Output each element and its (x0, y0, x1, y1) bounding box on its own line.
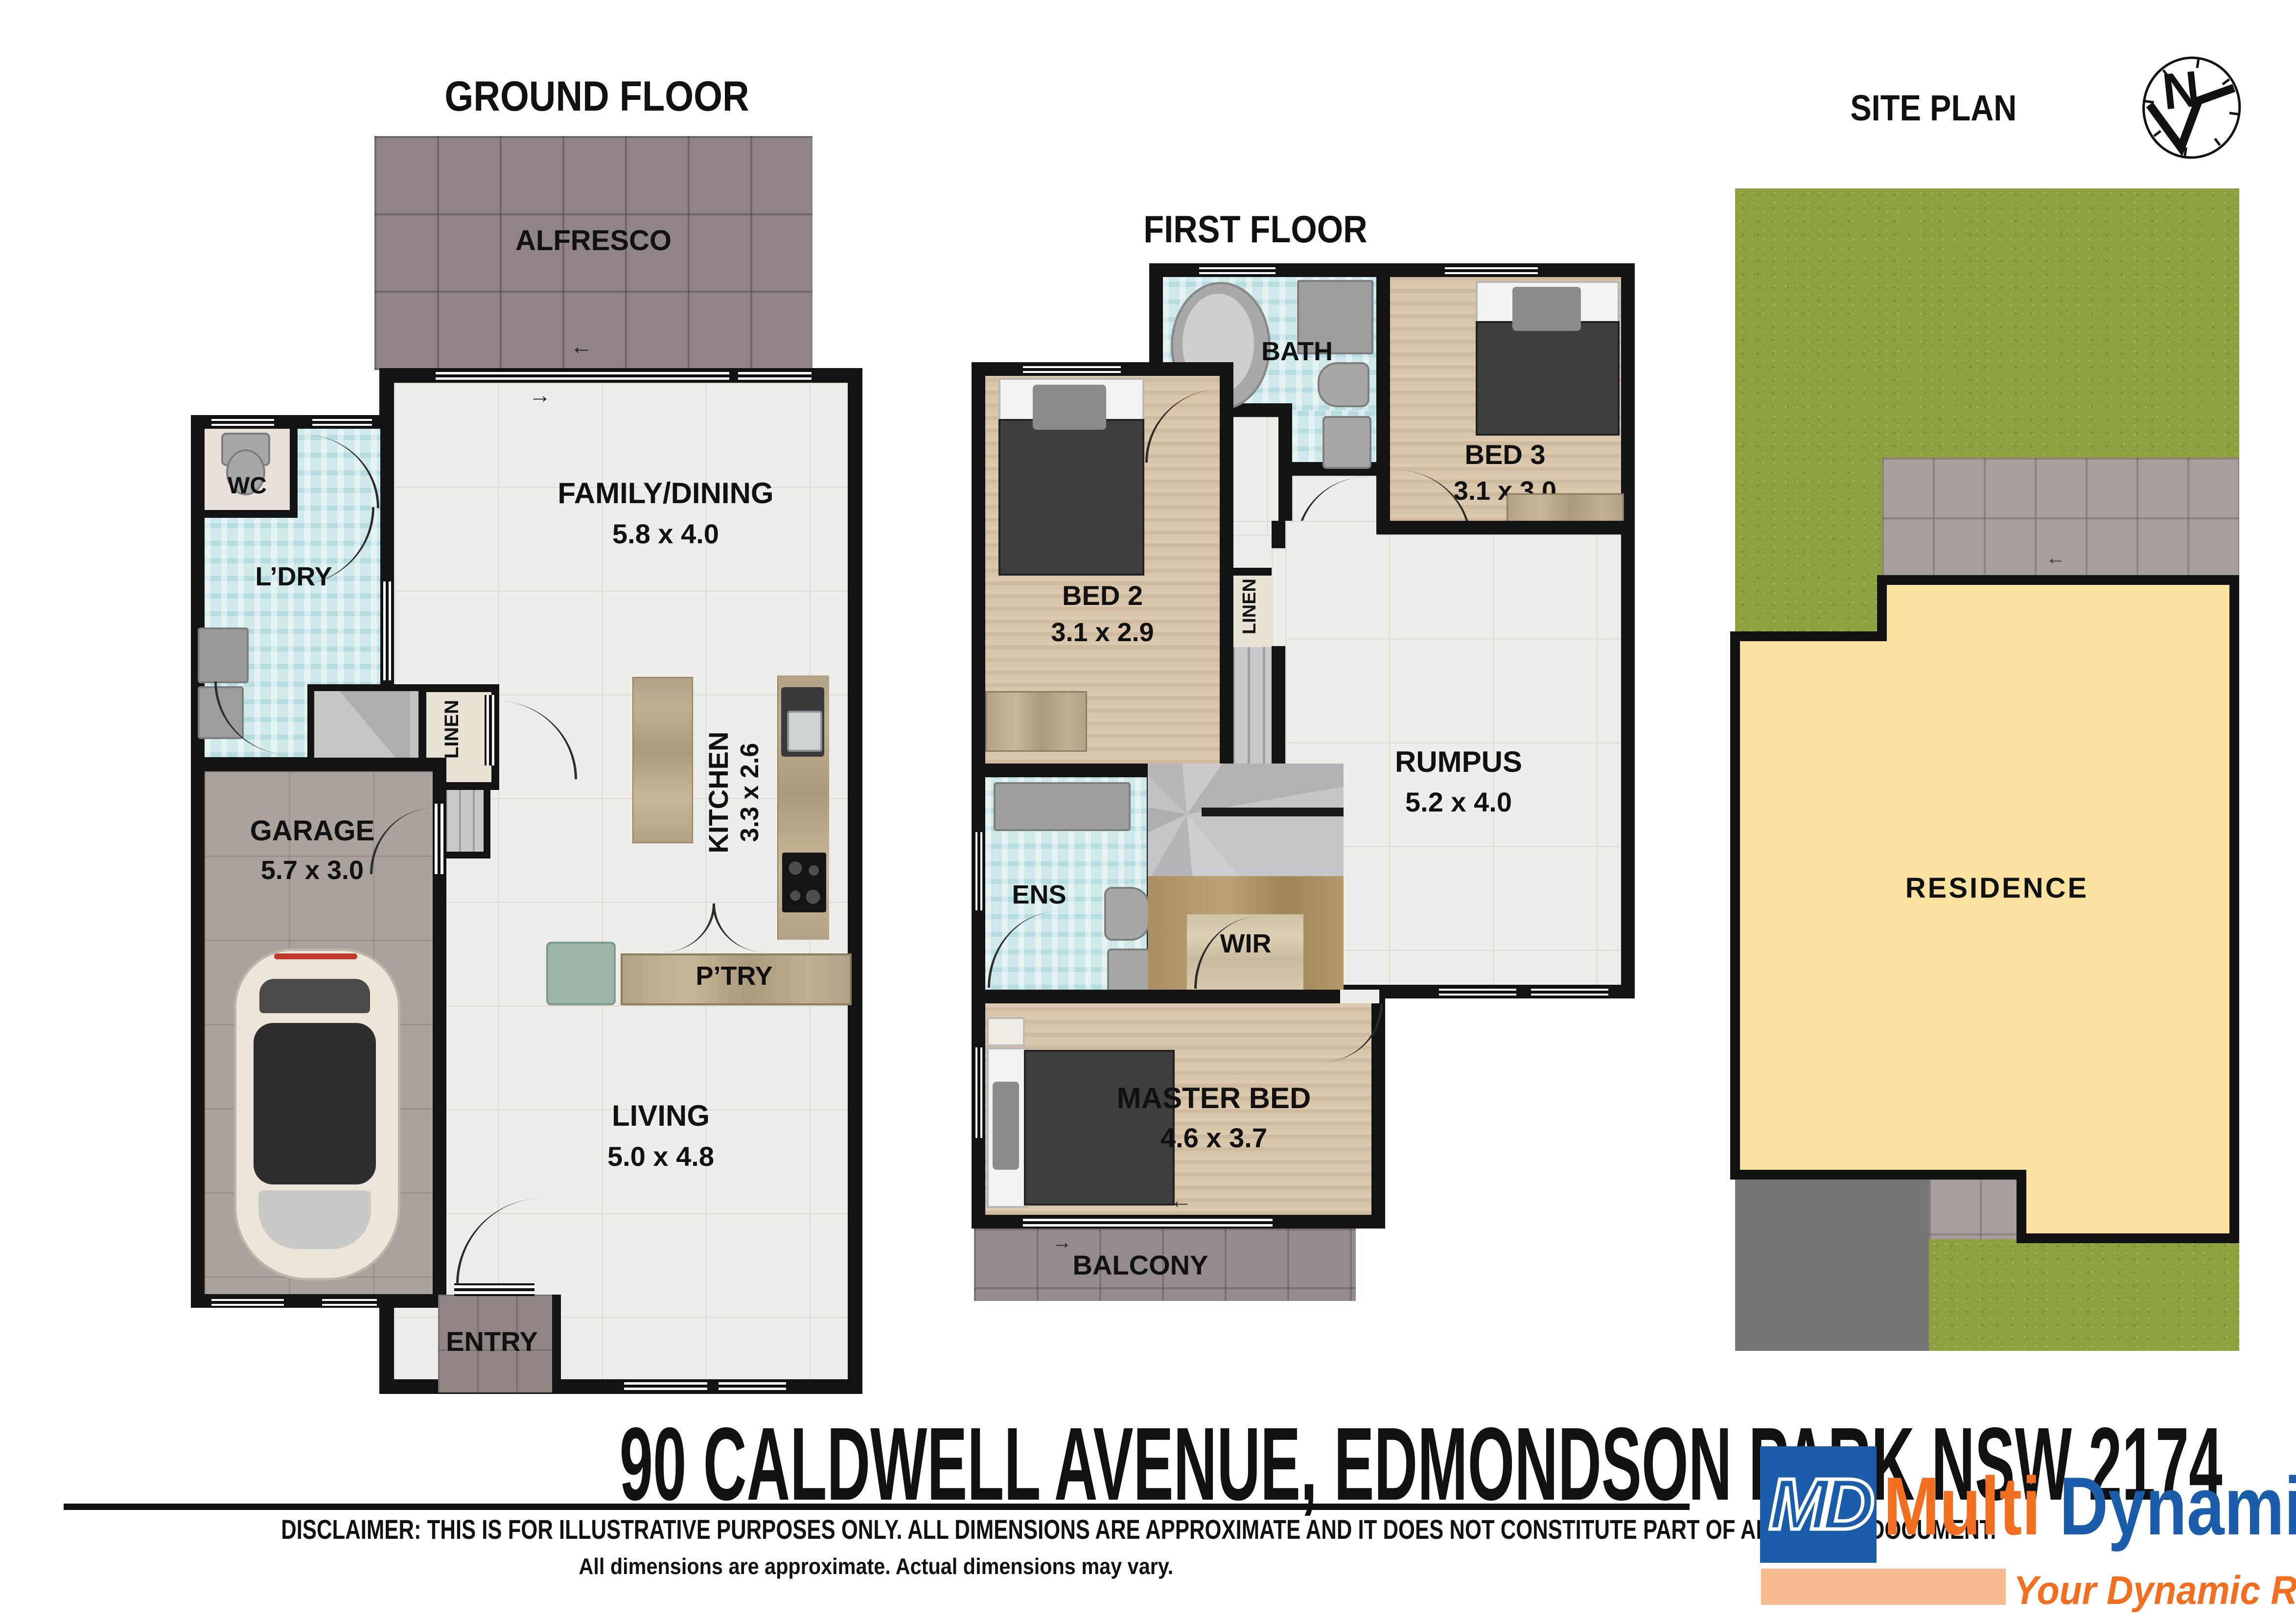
brand-name-multi: Multi (1883, 1460, 2041, 1552)
bed-pillow (993, 1082, 1019, 1170)
ff-linen-label: LINEN (1239, 570, 1260, 643)
vanity-icon (1322, 416, 1371, 469)
ground-floor-title: GROUND FLOOR (379, 74, 815, 118)
balcony-label: BALCONY (1003, 1251, 1277, 1280)
divider-rule (64, 1504, 1690, 1510)
compass-icon: N (2140, 53, 2244, 161)
window (1023, 364, 1121, 375)
ens-label: ENS (983, 881, 1095, 909)
kitchen-label: KITCHEN (705, 709, 732, 876)
logo-monogram: MD (1769, 1463, 1868, 1546)
bedside-table (987, 1017, 1025, 1046)
living-dims: 5.0 x 4.8 (509, 1142, 812, 1171)
master-label: MASTER BED (1067, 1083, 1361, 1113)
address-title: 90 CALDWELL AVENUE, EDMONDSON PARK NSW 2… (39, 1410, 1713, 1519)
bath-label: BATH (1233, 338, 1361, 366)
alfresco-label: ALFRESCO (374, 226, 812, 256)
site-plan-title: SITE PLAN (1738, 89, 2129, 127)
window (1445, 265, 1538, 276)
sliding-door-window (1023, 1217, 1273, 1229)
window (1199, 265, 1276, 276)
pantry-label: P’TRY (621, 962, 848, 990)
bed-blanket (998, 419, 1144, 576)
kitchen-sink-basin (787, 711, 822, 752)
direction-arrow-icon: ← (2046, 547, 2065, 569)
stove-cooktop (782, 853, 826, 912)
direction-arrow-icon: ← (1170, 1187, 1192, 1213)
brand-peach-bar (1761, 1569, 2006, 1605)
master-dims: 4.6 x 3.7 (1067, 1124, 1361, 1153)
window (974, 1047, 984, 1138)
bed2-label: BED 2 (985, 581, 1220, 610)
window (211, 417, 274, 428)
kitchen-island (632, 677, 693, 843)
bed3-label: BED 3 (1395, 441, 1615, 469)
car-windshield (258, 1190, 371, 1249)
kitchen-dims: 3.3 x 2.6 (738, 709, 762, 876)
bath-wall (1278, 410, 1292, 476)
disclaimer-line2: All dimensions are approximate. Actual d… (39, 1554, 1713, 1578)
entry-label: ENTRY (431, 1327, 553, 1356)
toilet-icon (1318, 362, 1369, 407)
brand-logo: MD Multi Dynamic Your Dynamic Real Estat… (1760, 1446, 2250, 1618)
car-taillight (274, 953, 357, 959)
window (322, 1297, 377, 1308)
rumpus-open-left (1272, 548, 1285, 646)
first-floor-title: FIRST FLOOR (1060, 209, 1451, 250)
bench-seat (546, 942, 616, 1005)
window (1439, 987, 1516, 997)
shower-icon (994, 782, 1131, 831)
rumpus-open-top (1285, 521, 1376, 548)
window (312, 417, 372, 428)
bed-pillow (1033, 385, 1106, 430)
stair-rail (1202, 808, 1344, 816)
door-gap (1340, 990, 1379, 1003)
brand-name: Multi Dynamic (1883, 1459, 2250, 1553)
desk-icon (985, 691, 1087, 752)
bed-blanket (1476, 321, 1620, 436)
site-grass-bottom (1929, 1239, 2239, 1351)
direction-arrow-icon: → (1052, 1231, 1072, 1253)
window (1531, 987, 1608, 997)
disclaimer-line1: DISCLAIMER: THIS IS FOR ILLUSTRATIVE PUR… (39, 1515, 1713, 1544)
ff-stairs-winder (1148, 764, 1344, 876)
window (719, 1380, 786, 1392)
entry-door (454, 1283, 534, 1296)
toilet-icon (1104, 887, 1150, 941)
bed-pillow (1512, 287, 1581, 331)
window (738, 370, 812, 382)
car-roof (254, 1023, 376, 1184)
bed2-dims: 3.1 x 2.9 (985, 619, 1220, 647)
residence-label: RESIDENCE (1811, 874, 2183, 904)
logo-monogram-box: MD (1760, 1446, 1877, 1563)
window (624, 1380, 707, 1392)
wc-label: WC (205, 474, 290, 498)
window (211, 1297, 284, 1308)
direction-arrow-icon: ← (570, 333, 593, 359)
direction-arrow-icon: → (529, 382, 551, 408)
family-dining-dims: 5.8 x 4.0 (509, 520, 822, 549)
window (974, 832, 984, 910)
washing-machine-icon (198, 627, 249, 683)
brand-name-dynamic: Dynamic (2060, 1460, 2296, 1552)
window (381, 581, 393, 680)
site-residence (1730, 575, 2244, 1248)
door-jamb (485, 695, 496, 765)
living-label: LIVING (509, 1100, 812, 1131)
family-dining-label: FAMILY/DINING (509, 478, 822, 509)
brand-tagline: Your Dynamic Real Estate (2014, 1568, 2250, 1614)
linen-label: LINEN (441, 693, 463, 766)
floorplan-page: { "ground": { "title": "GROUND FLOOR", "… (0, 0, 2296, 1623)
car-rear-window (259, 979, 370, 1013)
sliding-door-window (436, 370, 729, 382)
